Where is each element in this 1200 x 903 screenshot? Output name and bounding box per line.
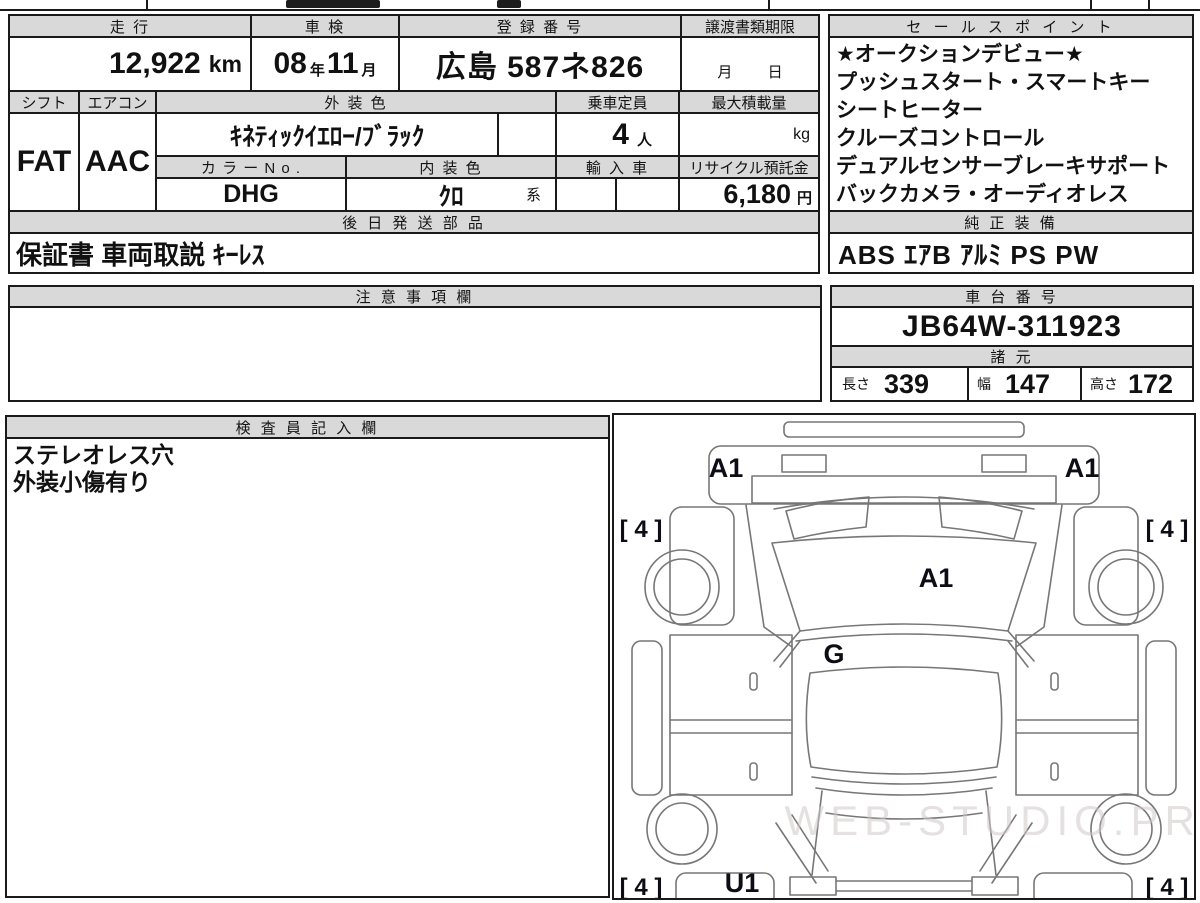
front-bumper-slot-left (782, 455, 826, 472)
shift-value: FAT (8, 112, 80, 212)
mileage-header: 走 行 (8, 14, 252, 38)
tire-depth-front-right: [ 4 ] (1146, 516, 1189, 543)
specs-header: 諸 元 (830, 345, 1194, 368)
top-cutoff-cell (1148, 0, 1200, 11)
mileage-value: 12,922 km (8, 36, 252, 92)
exterior-color-extra-cell (497, 112, 557, 157)
sales-point-line: デュアルセンサーブレーキサポート (836, 153, 1186, 181)
roof (806, 667, 1001, 774)
tire-depth-front-left: [ 4 ] (620, 516, 663, 543)
color-no-value: DHG (155, 177, 347, 212)
rear-quarter-right (1034, 873, 1132, 898)
shaken-value: 08 年 11 月 (250, 36, 400, 92)
capacity-number: 4 (612, 118, 629, 152)
sales-point-line: バックカメラ・オーディオレス (836, 181, 1186, 209)
sales-point-line: クルーズコントロール (836, 125, 1186, 153)
sales-point-line: シートヒーター (836, 97, 1186, 125)
equipment-value: ABS ｴｱB ｱﾙﾐ PS PW (828, 232, 1194, 274)
damage-label-windshield: A1 (919, 563, 954, 593)
front-bumper-slot-right (982, 455, 1026, 472)
spec-width: 幅 147 (967, 366, 1082, 402)
door-handle-left-rear (750, 763, 757, 780)
deadline-value: 月 日 (680, 36, 820, 92)
front-grille (752, 476, 1056, 503)
exterior-color-value: ｷﾈﾃｨｯｸｲｴﾛｰ/ﾌﾞﾗｯｸ (155, 112, 499, 157)
shift-header: シフト (8, 90, 80, 114)
color-no-header: カ ラ ー N o . (155, 155, 347, 179)
interior-color-suffix: 系 (526, 184, 541, 205)
shaken-year: 08 (273, 47, 306, 81)
inspector-header: 検 査 員 記 入 欄 (5, 415, 610, 439)
auction-sheet: { "colors": { "header_bg": "#d9d9d9", "b… (0, 0, 1200, 900)
door-handle-right-rear (1051, 763, 1058, 780)
import-cell-1 (555, 177, 617, 212)
front-top-strip (784, 422, 1024, 437)
sales-point-list: ★オークションデビュー★ プッシュスタート・スマートキー シートヒーター クルー… (828, 36, 1194, 212)
capacity-header: 乗車定員 (555, 90, 680, 114)
car-diagram-box: WEB-STUDIO.PRO A1 A1 A1 G U1 [ 4 ] [ 4 ]… (612, 413, 1196, 900)
rear-bumper-bar (836, 881, 972, 891)
cutoff-text-fragment (286, 0, 380, 8)
spec-width-label: 幅 (977, 374, 991, 394)
interior-color-text: ｸﾛ (438, 177, 463, 213)
top-cutoff-cell (768, 0, 1092, 11)
aircon-value: AAC (78, 112, 157, 212)
interior-color-header: 内 装 色 (345, 155, 557, 179)
import-header: 輸 入 車 (555, 155, 680, 179)
door-seam-left (670, 720, 792, 733)
front-bumper (709, 446, 1099, 504)
wheel-front-left (645, 550, 719, 624)
car-diagram: WEB-STUDIO.PRO A1 A1 A1 G U1 [ 4 ] [ 4 ]… (614, 415, 1194, 898)
a-pillars (774, 631, 1034, 667)
watermark-text: WEB-STUDIO.PRO (784, 797, 1194, 844)
recycle-number: 6,180 (723, 179, 791, 210)
top-cutoff-cell (1090, 0, 1150, 11)
shaken-year-unit: 年 (310, 59, 325, 80)
windshield (772, 536, 1036, 631)
chassis-header: 車 台 番 号 (830, 285, 1194, 308)
aircon-header: エアコン (78, 90, 157, 114)
spec-length-label: 長さ (842, 374, 870, 394)
registration-value: 広島 587ネ826 (398, 36, 682, 92)
damage-label-front-left: A1 (709, 453, 744, 483)
spec-width-value: 147 (1005, 369, 1050, 400)
sales-point-line: プッシュスタート・スマートキー (836, 69, 1186, 97)
damage-label-rear-left: U1 (725, 868, 760, 898)
wheel-front-left-inner (654, 559, 710, 615)
tire-depth-rear-right: [ 4 ] (1146, 874, 1189, 898)
later-parts-value: 保証書 車両取説 ｷｰﾚｽ (8, 232, 820, 274)
spec-height-value: 172 (1128, 369, 1173, 400)
door-panel-right (1016, 635, 1138, 795)
shaken-month: 11 (327, 47, 359, 81)
inspector-content: ステレオレス穴 外装小傷有り (5, 437, 610, 898)
registration-header: 登 録 番 号 (398, 14, 682, 38)
sill-right (1146, 641, 1176, 795)
rear-window-arc-2 (816, 788, 992, 795)
spec-height: 高さ 172 (1080, 366, 1194, 402)
inspector-note-line: ステレオレス穴 (13, 442, 602, 469)
deadline-month-label: 月 (717, 61, 732, 82)
notes-header: 注 意 事 項 欄 (8, 285, 822, 308)
mileage-number: 12,922 (109, 47, 201, 81)
deadline-header: 譲渡書類期限 (680, 14, 820, 38)
damage-label-front-right: A1 (1065, 453, 1100, 483)
recycle-header: リサイクル預託金 (678, 155, 820, 179)
exterior-color-header: 外 装 色 (155, 90, 557, 114)
import-cell-2 (615, 177, 680, 212)
recycle-value: 6,180 円 (678, 177, 820, 212)
spec-length: 長さ 339 (830, 366, 969, 402)
damage-label-hood: G (823, 639, 844, 669)
spec-height-label: 高さ (1090, 374, 1118, 394)
max-load-value: kg (678, 112, 820, 157)
top-cutoff-cell (0, 0, 148, 11)
sales-point-header: セ ー ル ス ポ イ ン ト (828, 14, 1194, 38)
shaken-month-unit: 月 (362, 59, 377, 80)
equipment-header: 純 正 装 備 (828, 210, 1194, 234)
spec-length-value: 339 (884, 369, 929, 400)
door-panel-left (670, 635, 792, 795)
wheel-rear-left-inner (656, 803, 708, 855)
top-cutoff-cell (146, 0, 770, 11)
wheel-front-right-inner (1098, 559, 1154, 615)
cutoff-text-fragment (497, 0, 521, 8)
interior-color-value: ｸﾛ 系 (345, 177, 557, 212)
wheel-rear-left (647, 794, 717, 864)
door-handle-right-front (1051, 673, 1058, 690)
sill-left (632, 641, 662, 795)
notes-content (8, 306, 822, 402)
inspector-note-line: 外装小傷有り (13, 469, 602, 496)
recycle-unit: 円 (797, 187, 812, 208)
sales-point-line: ★オークションデビュー★ (836, 41, 1186, 69)
capacity-value: 4 人 (555, 112, 680, 157)
rear-window-arc-1 (812, 777, 996, 784)
later-parts-header: 後 日 発 送 部 品 (8, 210, 820, 234)
capacity-unit: 人 (637, 129, 652, 150)
mileage-unit: km (209, 51, 242, 78)
deadline-day-label: 日 (768, 61, 783, 82)
chassis-value: JB64W-311923 (830, 306, 1194, 347)
shaken-header: 車 検 (250, 14, 400, 38)
tire-depth-rear-left: [ 4 ] (620, 874, 663, 898)
fender-door-seams (746, 505, 1062, 647)
door-seam-right (1016, 720, 1138, 733)
wheel-front-right (1089, 550, 1163, 624)
door-handle-left-front (750, 673, 757, 690)
max-load-header: 最大積載量 (678, 90, 820, 114)
